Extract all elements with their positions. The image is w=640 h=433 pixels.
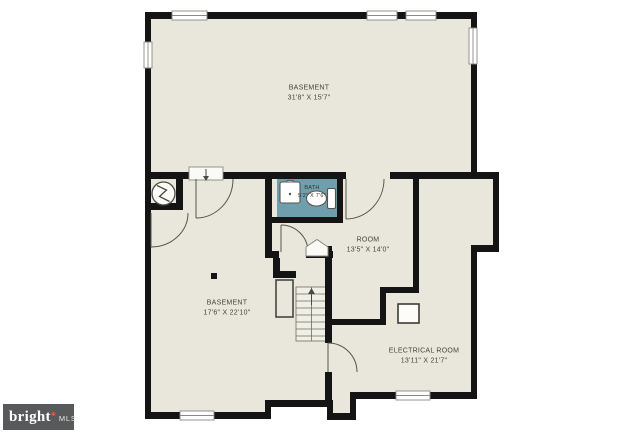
wall-segment [390,172,499,179]
water-heater-icon [152,182,175,205]
wall-segment [413,179,419,293]
wall-segment [337,172,343,223]
wall-segment [223,172,346,179]
room-name: BASEMENT [288,84,331,94]
wall-segment [265,251,279,258]
room-dims: 31'8" X 15'7" [288,93,331,103]
logo-suffix-text: MLS [59,414,77,423]
floorplan-drawing [0,0,640,433]
window [180,411,214,420]
wall-segment [493,172,499,252]
room-label-room: ROOM 13'5" X 14'0" [347,236,390,255]
room-label-electrical-room: ELECTRICAL ROOM 13'11" X 21'7" [389,347,459,366]
wall-segment [325,246,332,343]
wall-segment [273,271,296,278]
wall-segment [383,287,419,293]
room-name: BASEMENT [204,299,251,309]
room-name: ELECTRICAL ROOM [389,347,459,357]
room-dims: 5'2" X 7'6" [298,192,326,200]
electrical-unit-icon [398,304,419,323]
wall-segment [265,179,272,258]
room-name: BATH [298,184,326,192]
wall-segment [325,372,332,402]
window [406,11,436,20]
cased-opening [189,167,223,181]
window [367,11,397,20]
room-dims: 17'6" X 22'10" [204,308,251,318]
room-dims: 13'11" X 21'7" [389,356,459,366]
room-dims: 13'5" X 14'0" [347,245,390,255]
wall-segment [471,245,477,399]
room-label-bath: BATH 5'2" X 7'6" [298,184,326,200]
brand-logo: bright✱MLS [3,404,74,430]
window [172,11,207,20]
logo-brand-text: bright [9,404,51,430]
window [396,391,430,400]
room-label-basement-lower: BASEMENT 17'6" X 22'10" [204,299,251,318]
sink-icon [280,181,300,204]
floorplan-page: BASEMENT 31'8" X 15'7" BATH 5'2" X 7'6" … [0,0,640,433]
room-name: ROOM [347,236,390,246]
room-label-basement-upper: BASEMENT 31'8" X 15'7" [288,84,331,103]
wall-segment [145,12,151,419]
window [469,28,477,64]
wall-segment [272,217,343,223]
structural-post [211,273,217,279]
wall-segment [332,319,386,325]
staircase [296,287,327,341]
wall-segment [265,400,333,407]
logo-star-icon: ✱ [51,411,56,418]
window [144,42,152,68]
wall-segment [145,172,190,179]
